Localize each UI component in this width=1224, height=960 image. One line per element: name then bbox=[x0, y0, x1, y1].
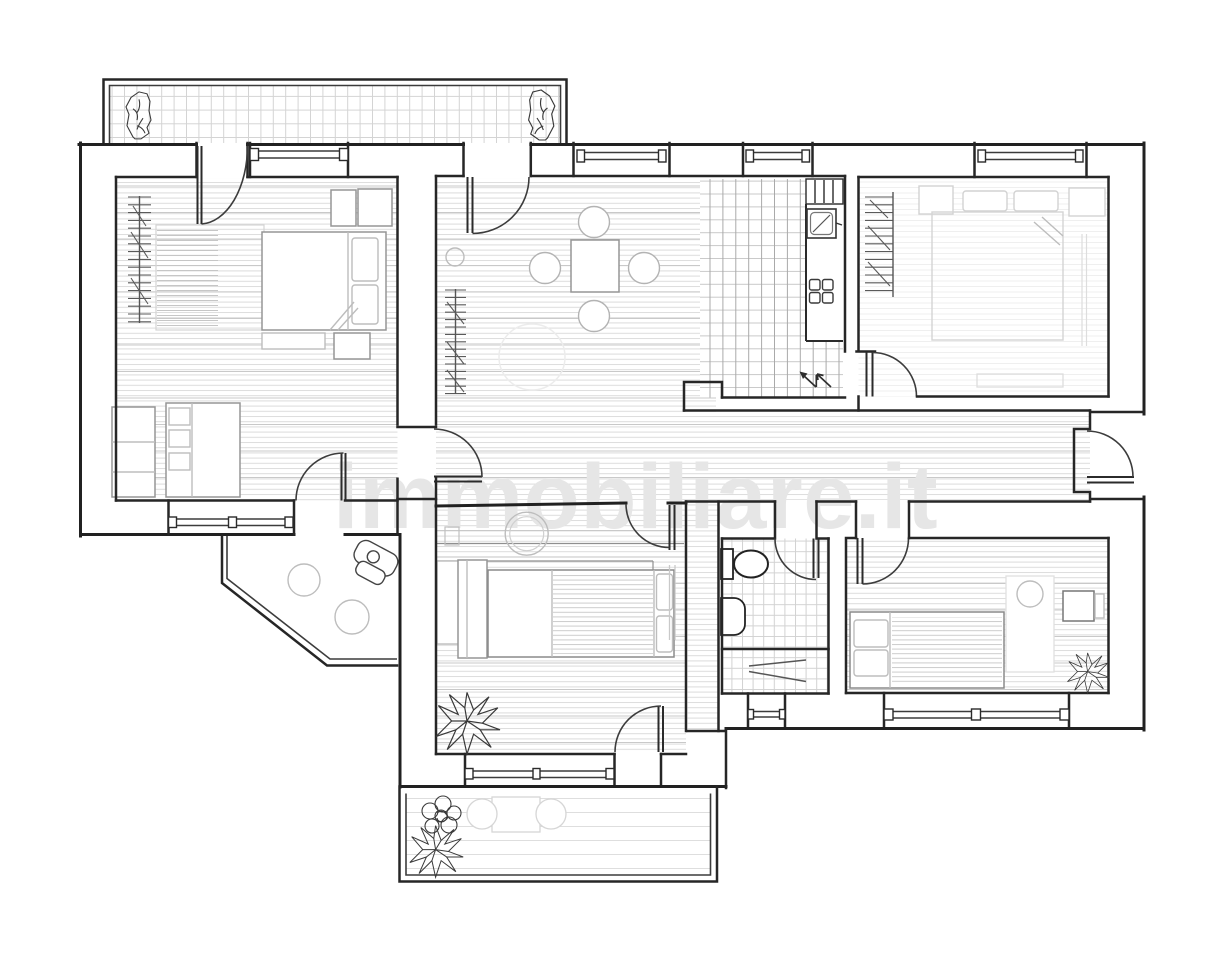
svg-text:immobiliare.it: immobiliare.it bbox=[333, 446, 938, 548]
